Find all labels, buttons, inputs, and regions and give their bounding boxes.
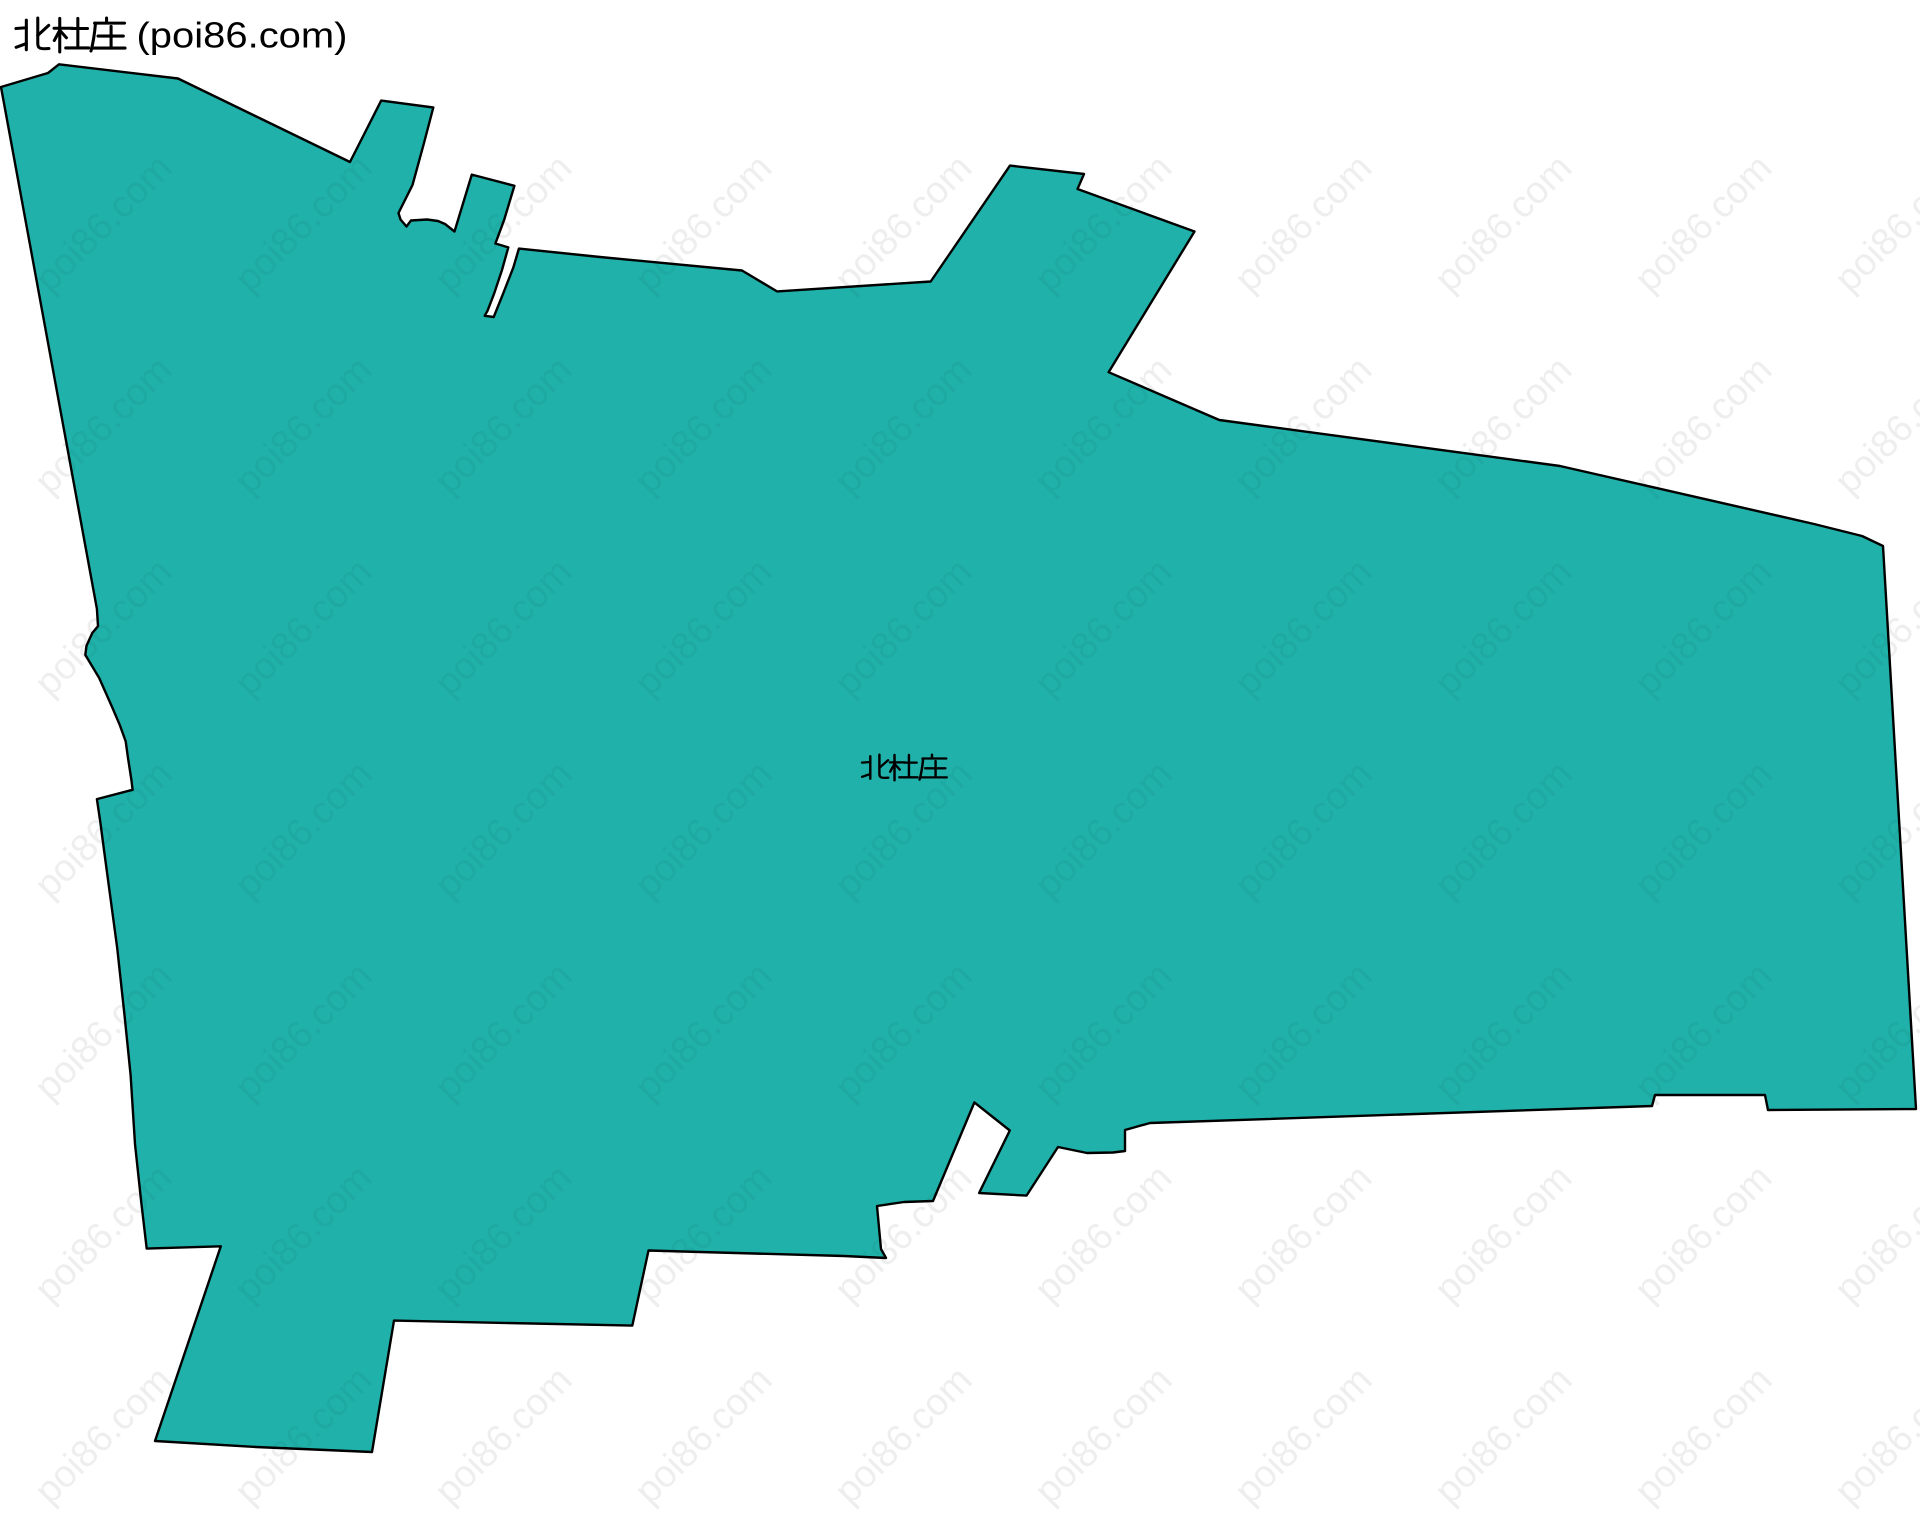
svg-text:(poi86.com): (poi86.com) (137, 15, 348, 56)
